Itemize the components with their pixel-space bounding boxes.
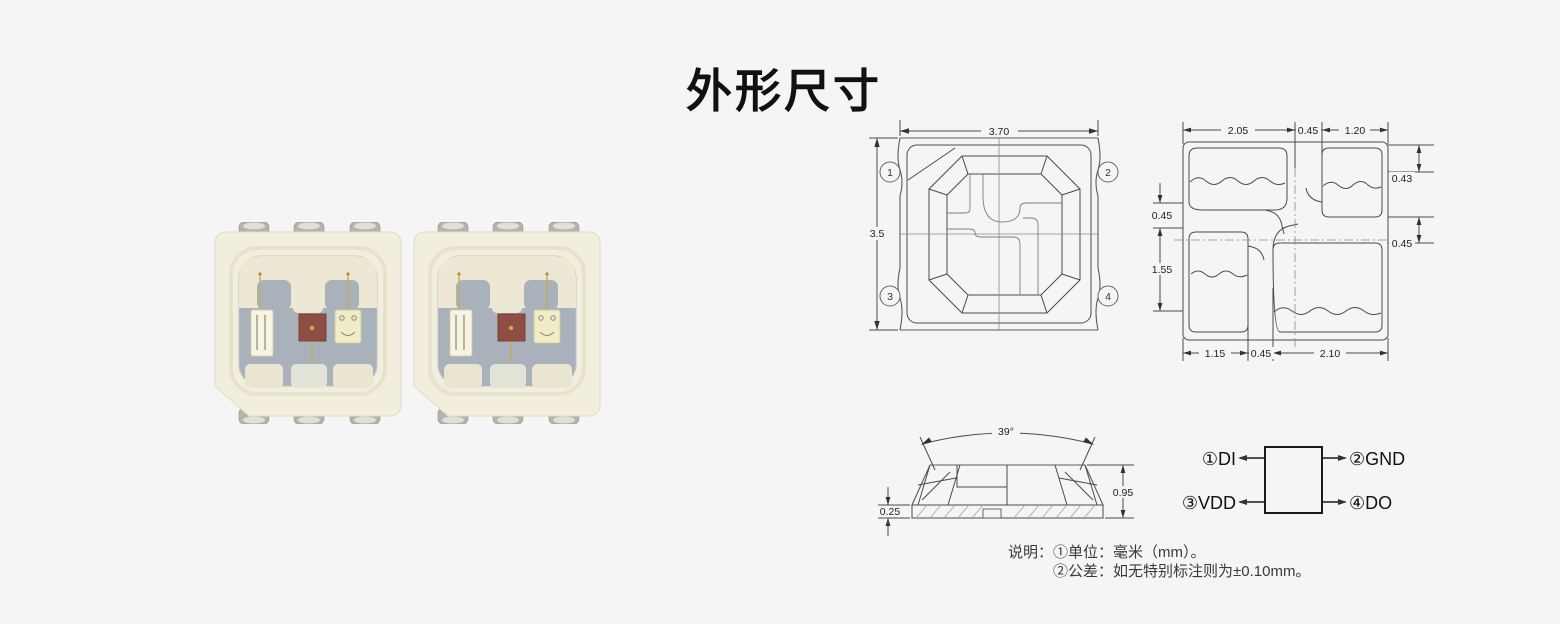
dim-bottom-left: 1.15 [1205,348,1226,360]
dimension-height: 0.95 [1087,465,1137,518]
dimension-top: 2.05 0.45 1.20 [1183,122,1388,168]
pin-marker-1: 1 [887,167,893,179]
dim-base-label: 0.25 [880,506,901,518]
dimension-right: 0.43 0.45 [1388,145,1434,250]
ic-body [1265,447,1322,513]
led-bottom-pads [245,364,373,388]
pin-label-di: ①DI [1202,449,1236,469]
dim-left-top: 0.45 [1152,210,1173,222]
dim-right-mid: 0.45 [1392,238,1413,250]
dimension-bottom: 1.15 0.45 2.10 [1183,288,1388,361]
pad-view-drawing: 2.05 0.45 1.20 1.15 0.45 2.10 [1146,106,1442,372]
pin-label-vdd: ③VDD [1182,493,1236,513]
dim-top-mid: 0.45 [1298,125,1319,137]
substrate-hatch [916,505,1095,518]
dim-height-label: 0.95 [1113,487,1134,499]
dim-top-right: 1.20 [1345,125,1366,137]
package-outline [1183,142,1388,340]
center-lines [900,138,1098,330]
solder-pads [1189,148,1382,332]
side-view-drawing: 39° 0.95 0.25 [870,410,1146,548]
dimension-angle: 39° [920,425,1095,470]
dim-right-top: 0.43 [1392,173,1413,185]
substrate-notch [983,509,1001,518]
internal-traces [947,174,1062,295]
led-chip-left [450,310,472,356]
center-lines [1174,134,1398,348]
led-bottom-pads [444,364,572,388]
dim-height-label: 3.5 [870,228,885,240]
note-line-2: ②公差：如无特别标注则为±0.10mm。 [1053,562,1310,581]
dimension-left: 0.45 1.55 [1149,183,1183,311]
led-chip-right [534,310,560,343]
led-photo-1 [213,222,403,424]
notes: 说明： ①单位：毫米（mm）。 ②公差：如无特别标注则为±0.10mm。 [1008,543,1310,581]
dim-bottom-mid: 0.45 [1251,348,1272,360]
dim-width-label: 3.70 [989,126,1010,138]
pin-label-gnd: ②GND [1349,449,1405,469]
pin-marker-2: 2 [1105,167,1111,179]
led-photo-2 [412,222,602,424]
led-chip-red [498,314,525,341]
dim-angle-label: 39° [998,426,1014,438]
led-chip-right [335,310,361,343]
dim-top-left: 2.05 [1228,125,1249,137]
dimension-base: 0.25 [877,487,910,536]
pin-label-do: ④DO [1349,493,1392,513]
notes-label: 说明： [1008,543,1053,581]
pin-marker-3: 3 [887,291,893,303]
led-product-photos [213,222,602,424]
led-chip-red [299,314,326,341]
pin-lines [1238,455,1347,505]
figure-canvas: 外形尺寸 [0,0,1560,624]
dimension-width: 3.70 [900,120,1098,138]
reflector-ring [929,156,1080,313]
note-line-1: ①单位：毫米（mm）。 [1053,543,1310,562]
dim-left-mid: 1.55 [1152,264,1173,276]
dim-bottom-right: 2.10 [1320,348,1341,360]
pin-marker-4: 4 [1105,291,1111,303]
package-profile [912,465,1103,518]
pin-diagram: ①DI ②GND ③VDD ④DO [1180,437,1425,527]
led-chip-left [251,310,273,356]
top-view-drawing: 3.70 3.5 1 2 3 4 [853,106,1145,358]
